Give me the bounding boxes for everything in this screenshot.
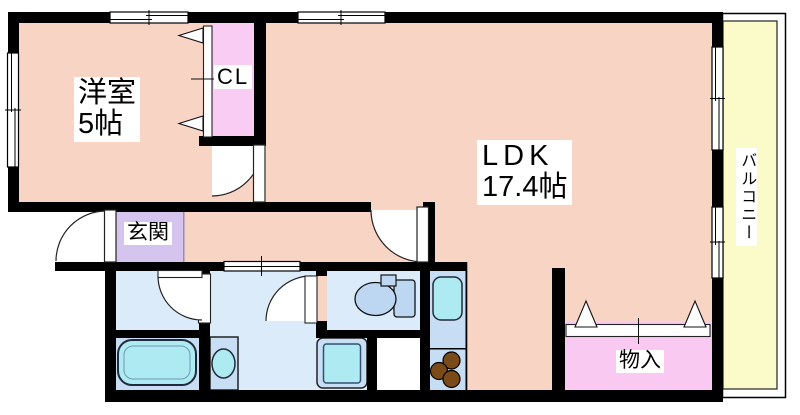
window-bedroom-top	[110, 10, 188, 25]
washing-machine	[324, 344, 361, 383]
window-ldk-east-upper	[710, 47, 725, 150]
wall-bedroom-south	[8, 202, 371, 212]
entrance-edge-line	[183, 212, 185, 262]
entrance-label: 玄関	[124, 222, 172, 245]
wall-bath-west	[105, 262, 116, 402]
kitchen-counter-edge	[466, 262, 468, 390]
wall-top	[188, 12, 298, 23]
floor-plan: 洋室 5帖 CL LDK 17.4帖 玄関 物入 バルコニー	[0, 0, 800, 415]
wall-toilet-west	[316, 262, 327, 276]
wall-kitchen-west	[420, 262, 430, 402]
closet-label: CL	[214, 65, 252, 89]
wall-top	[385, 12, 722, 23]
wall-void-west	[367, 330, 377, 390]
wash-basin	[212, 349, 235, 378]
wall-storage-west	[552, 268, 565, 390]
stove-burner	[443, 371, 460, 388]
bedroom-name: 洋室	[78, 78, 136, 109]
floor-plan-drawing	[0, 0, 800, 415]
door-entrance	[56, 210, 116, 262]
wall-left	[8, 12, 19, 53]
window-bedroom-left	[5, 53, 21, 167]
kitchen-sink	[433, 277, 462, 320]
window-ldk-top	[298, 10, 385, 25]
storage-label: 物入	[616, 350, 664, 373]
wall-east	[712, 12, 723, 47]
wall-bath-divider	[116, 330, 199, 338]
ldk-name: LDK	[482, 141, 567, 172]
toilet-bowl	[355, 283, 396, 316]
wall-toilet-west	[316, 321, 327, 338]
wall-east	[712, 150, 723, 207]
void-space	[377, 338, 420, 390]
toilet-cistern	[381, 275, 396, 286]
balcony-label: バルコニー	[736, 148, 757, 246]
toilet-tank	[394, 280, 415, 317]
wall-bedroom-ldk	[254, 12, 266, 145]
wall-hall-south	[55, 262, 224, 271]
bedroom-label: 洋室 5帖	[74, 77, 140, 142]
wall-washroom-divider	[199, 323, 210, 390]
wall-east	[712, 278, 723, 402]
wall-bottom	[105, 390, 723, 402]
wall-top	[8, 12, 110, 23]
window-ldk-east-lower	[710, 207, 725, 278]
ldk-label: LDK 17.4帖	[477, 140, 572, 205]
kitchen-counter-divider	[430, 348, 466, 350]
ldk-size: 17.4帖	[482, 172, 567, 203]
bedroom-size: 5帖	[78, 109, 136, 140]
